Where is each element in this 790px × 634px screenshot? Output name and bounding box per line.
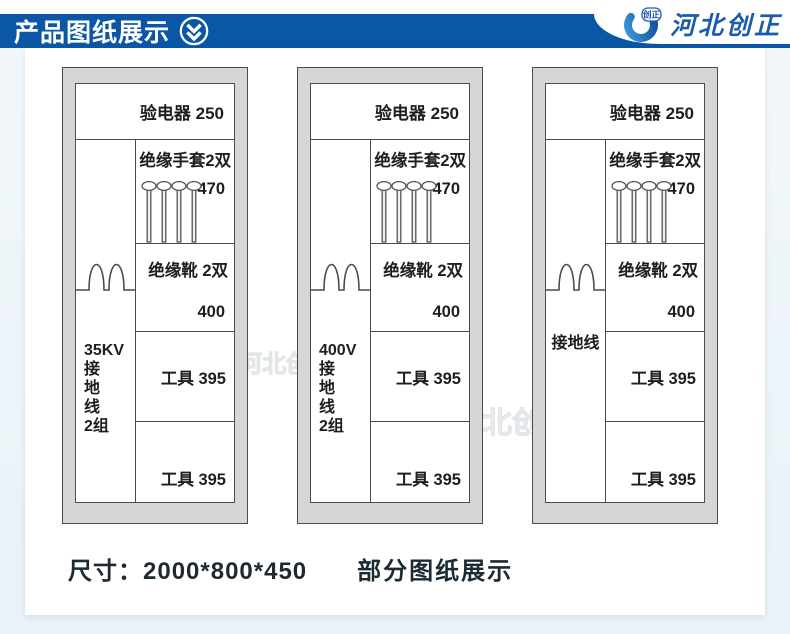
gloves-label: 绝缘手套2双 [609,147,701,171]
company-name: 河北创正 [670,6,782,42]
shelf-boots: 绝缘靴 2双 400 [136,244,234,332]
shelf-tools-1: 工具 395 [136,332,234,422]
dimensions-label: 尺寸：2000*800*450 [68,551,307,586]
tools-label: 工具 395 [631,365,696,389]
shelf-boots: 绝缘靴 2双 400 [371,244,469,332]
ground-wire-label: 400V 接 地 线 2组 [319,341,356,436]
shelf-tools-1: 工具 395 [371,332,469,422]
cabinet-interior: 验电器 250 35KV 接 地 线 2组 绝缘手套 [75,83,235,503]
shelf-gloves: 绝缘手套2双 470 [136,140,234,244]
cabinet-interior: 验电器 250 400V 接 地 线 2组 绝缘手套 [310,83,470,503]
tools-label: 工具 395 [396,466,461,490]
shelf-tools-2: 工具 395 [606,422,704,502]
gloves-label: 绝缘手套2双 [139,147,231,171]
tools-label: 工具 395 [396,365,461,389]
boots-label: 绝缘靴 2双 [383,257,463,281]
ground-wire-column: 接地线 [546,140,606,502]
shelf-gloves: 绝缘手套2双 470 [606,140,704,244]
footer-caption-row: 尺寸：2000*800*450 部分图纸展示 [68,551,513,586]
ground-wire-hooks-icon [546,246,606,294]
tools-label: 工具 395 [161,466,226,490]
page-title: 产品图纸展示 [14,13,170,49]
ground-wire-label: 接地线 [546,334,605,353]
ground-wire-label: 35KV 接 地 线 2组 [84,341,124,436]
cabinet-interior: 验电器 250 接地线 绝缘手套2双 470 [545,83,705,503]
boots-label: 绝缘靴 2双 [148,257,228,281]
cabinet-diagram-2: 验电器 250 400V 接 地 线 2组 绝缘手套 [297,67,483,524]
boots-value: 400 [432,303,460,322]
chevron-down-circle-icon [178,15,210,47]
ground-wire-hooks-icon [76,246,136,294]
glove-rods-icon [141,181,207,243]
ground-wire-hooks-icon [311,246,371,294]
tools-label: 工具 395 [631,466,696,490]
boots-value: 400 [667,303,695,322]
shelf-electroscope: 验电器 250 [311,84,469,140]
gloves-label: 绝缘手套2双 [374,147,466,171]
content-card: 河北创正 河北创正 河北创正 验电器 250 35KV 接 地 线 2组 [25,48,765,615]
ground-wire-column: 35KV 接 地 线 2组 [76,140,136,502]
brand-logo: 创正 河北创正 [622,2,782,46]
shelf-tools-2: 工具 395 [136,422,234,502]
shelf-tools-2: 工具 395 [371,422,469,502]
shelf-gloves: 绝缘手套2双 470 [371,140,469,244]
logo-circle-icon: 创正 [622,2,664,46]
shelf-tools-1: 工具 395 [606,332,704,422]
glove-rods-icon [611,181,677,243]
glove-rods-icon [376,181,442,243]
logo-badge-text: 创正 [642,10,661,20]
boots-label: 绝缘靴 2双 [618,257,698,281]
shelf-electroscope: 验电器 250 [76,84,234,140]
cabinet-diagram-1: 验电器 250 35KV 接 地 线 2组 绝缘手套 [62,67,248,524]
section-header: 产品图纸展示 [14,14,210,48]
tools-label: 工具 395 [161,365,226,389]
shelf-boots: 绝缘靴 2双 400 [606,244,704,332]
partial-drawings-label: 部分图纸展示 [357,551,513,586]
shelf-electroscope: 验电器 250 [546,84,704,140]
boots-value: 400 [197,303,225,322]
cabinet-diagram-3: 验电器 250 接地线 绝缘手套2双 470 [532,67,718,524]
ground-wire-column: 400V 接 地 线 2组 [311,140,371,502]
